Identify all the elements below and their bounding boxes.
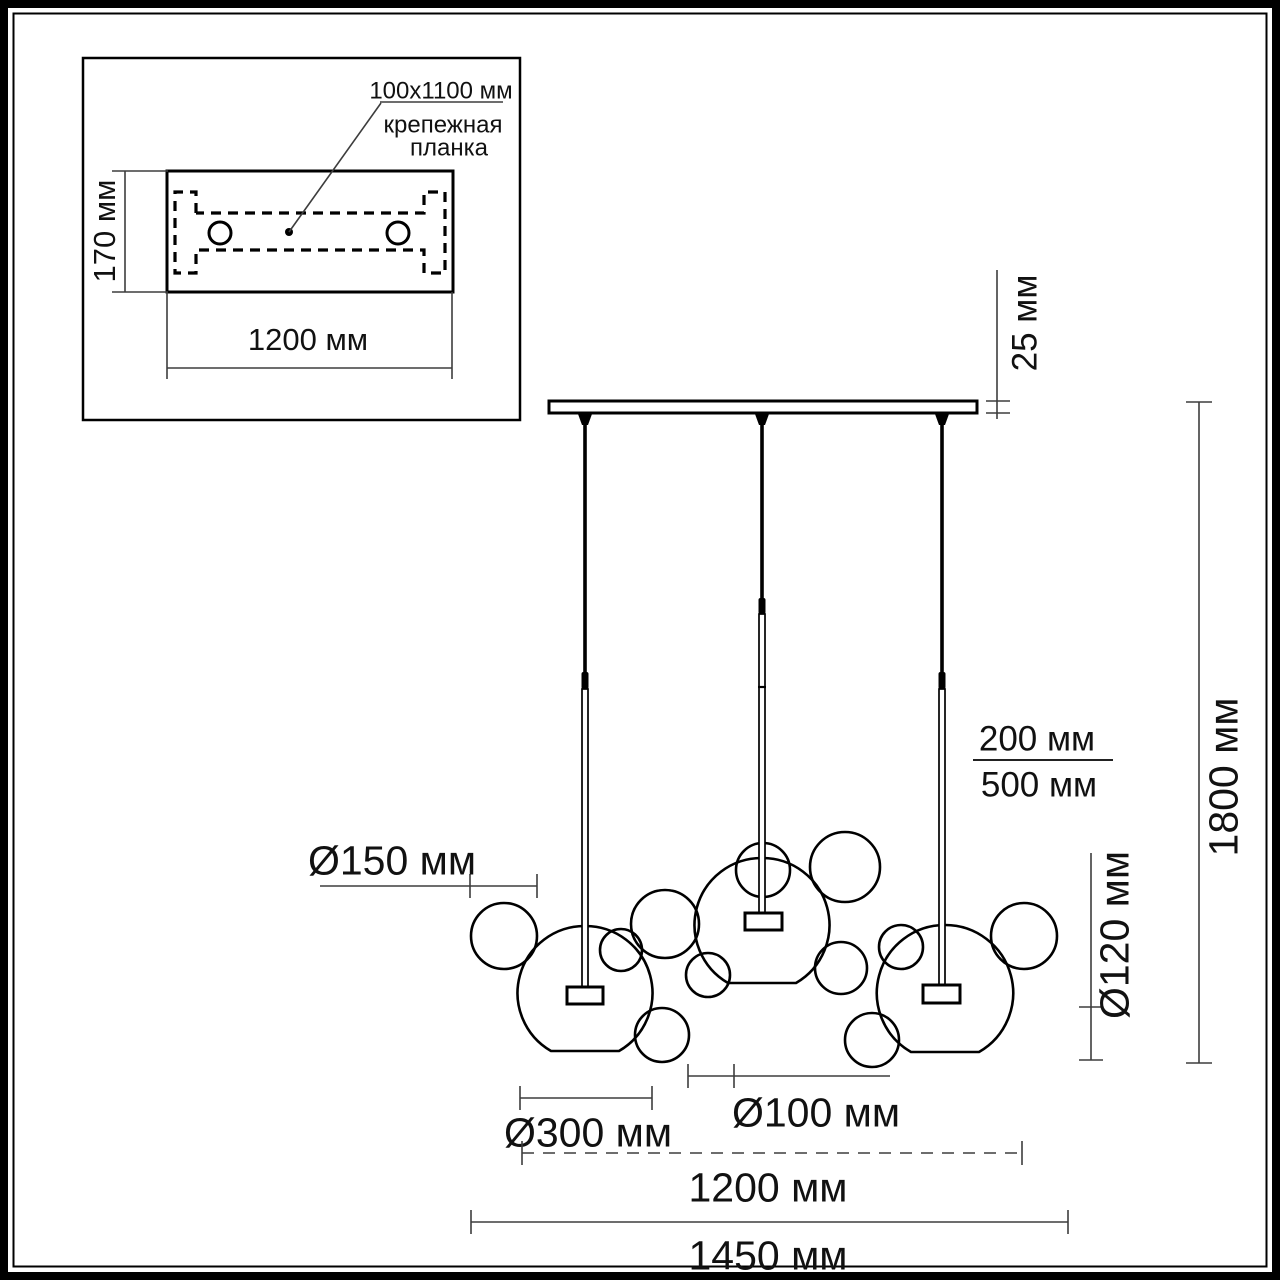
rod-center <box>759 614 765 914</box>
technical-drawing-page: 100x1100 мм крепежная планка 170 мм 1200… <box>0 0 1280 1280</box>
dim-cord-bottom-label: 500 мм <box>981 765 1097 804</box>
dim-bubble-120-label: Ø120 мм <box>1091 851 1137 1019</box>
dim-bubble-300-label: Ø300 мм <box>504 1109 672 1155</box>
rod-left <box>582 689 588 988</box>
cable-right <box>940 424 944 675</box>
dim-bubble-100-label: Ø100 мм <box>732 1089 900 1135</box>
dim-outer-span-label: 1450 мм <box>689 1232 848 1278</box>
dim-inner-span-label: 1200 мм <box>689 1164 848 1210</box>
callout-size-label: 100x1100 мм <box>369 77 512 104</box>
dim-bubble-150-label: Ø150 мм <box>308 837 476 883</box>
callout-name-line2: планка <box>410 134 489 161</box>
cable-connector-center <box>759 598 766 614</box>
dim-plate-width-label: 1200 мм <box>248 322 368 357</box>
rod-right <box>939 689 945 986</box>
led-module-left <box>567 987 603 1004</box>
dim-total-height-label: 1800 мм <box>1200 698 1246 857</box>
dim-cord-top-label: 200 мм <box>979 719 1095 758</box>
dim-plate-height-label: 170 мм <box>87 180 122 283</box>
pendant-light-dimension-diagram: 100x1100 мм крепежная планка 170 мм 1200… <box>0 0 1280 1280</box>
cable-connector-right <box>939 672 946 689</box>
led-module-center <box>745 913 782 930</box>
cable-connector-left <box>582 672 589 689</box>
dim-canopy-thickness-label: 25 мм <box>1005 275 1044 372</box>
cable-left <box>583 424 587 675</box>
cable-center <box>760 424 764 602</box>
led-module-right <box>923 985 960 1003</box>
canopy-bar <box>549 401 977 413</box>
